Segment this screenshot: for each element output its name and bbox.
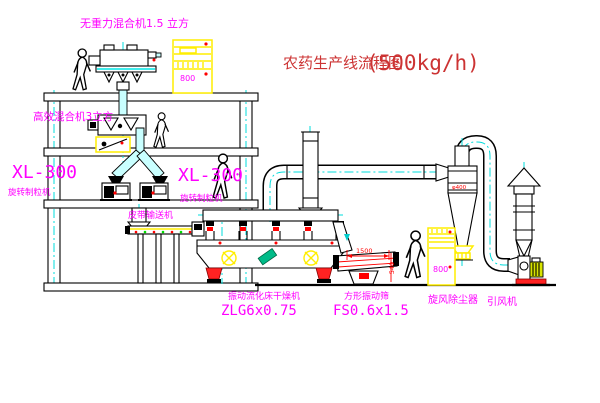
indicator-light — [204, 72, 207, 75]
indicator-light — [449, 231, 452, 234]
cyclone-label: 旋风除尘器 — [428, 293, 478, 306]
fan-base — [516, 279, 546, 284]
dryer-foot — [316, 268, 332, 279]
belt-conveyor — [125, 224, 203, 283]
granulator-model-right: XL-300 — [178, 165, 243, 186]
cyclone-dim-text: φ400 — [452, 185, 467, 191]
title-capacity: (500kg/h) — [366, 51, 480, 75]
belt-leg — [138, 234, 143, 283]
control-cabinet-1: 800 — [173, 40, 212, 93]
belt-leg — [174, 234, 179, 283]
dryer-feed-pipe — [299, 126, 322, 224]
svg-text:540: 540 — [388, 262, 396, 274]
worker-figure — [405, 231, 425, 277]
ground-slab — [44, 283, 258, 291]
screen-name-label: 方形振动筛 — [344, 290, 389, 302]
worker-figure — [73, 49, 90, 90]
indicator-light — [449, 266, 452, 269]
top-mixer-label: 无重力混合机1.5 立方 — [80, 16, 189, 30]
mixer-body — [100, 50, 148, 68]
dryer-springs — [206, 221, 344, 240]
granulator-right — [138, 183, 170, 201]
stack-body — [516, 194, 532, 240]
screen-model-label: FS0.6x1.5 — [333, 303, 409, 319]
fan-housing — [518, 256, 530, 280]
svg-text:1500: 1500 — [356, 247, 373, 255]
fan-label: 引风机 — [487, 295, 517, 308]
cabinet1-text: 800 — [180, 74, 195, 83]
granulator-name-right: 旋转制粒机 — [180, 193, 223, 204]
cad-diagram: 800 — [0, 0, 600, 403]
pesticide-production-line-drawing: 800 — [0, 0, 600, 403]
mixer-outlet — [148, 52, 156, 58]
dryer-model-label: ZLG6x0.75 — [221, 303, 297, 319]
granulator-name-left: 旋转制粒机 — [8, 187, 51, 198]
granulator-model-left: XL-300 — [12, 162, 77, 183]
indicator-light — [204, 42, 207, 45]
induced-draft-fan — [508, 256, 550, 285]
belt-leg — [156, 234, 161, 283]
worker-figure — [154, 113, 169, 147]
cyclone-outlet-pipe — [455, 146, 469, 168]
dryer-foot — [206, 268, 222, 279]
granulators — [100, 176, 170, 201]
floor-slab-top — [44, 93, 258, 101]
granulator-left — [100, 183, 132, 201]
dryer-hood — [203, 210, 338, 221]
belt-conveyor-label: 皮带输送机 — [128, 209, 173, 221]
floor2-mixer-label: 高效混合机3立方 — [33, 110, 113, 123]
mixer-motor — [89, 56, 100, 65]
control-cabinet-2: 800 — [428, 228, 455, 285]
dryer-name-label: 振动流化床干燥机 — [228, 290, 300, 302]
stack-cap — [508, 168, 540, 186]
cabinet2-text: 800 — [433, 265, 448, 274]
floor-slab-3 — [44, 200, 258, 208]
vibrating-screen: 1500 540 — [333, 222, 399, 284]
fluid-bed-dryer — [192, 210, 344, 284]
